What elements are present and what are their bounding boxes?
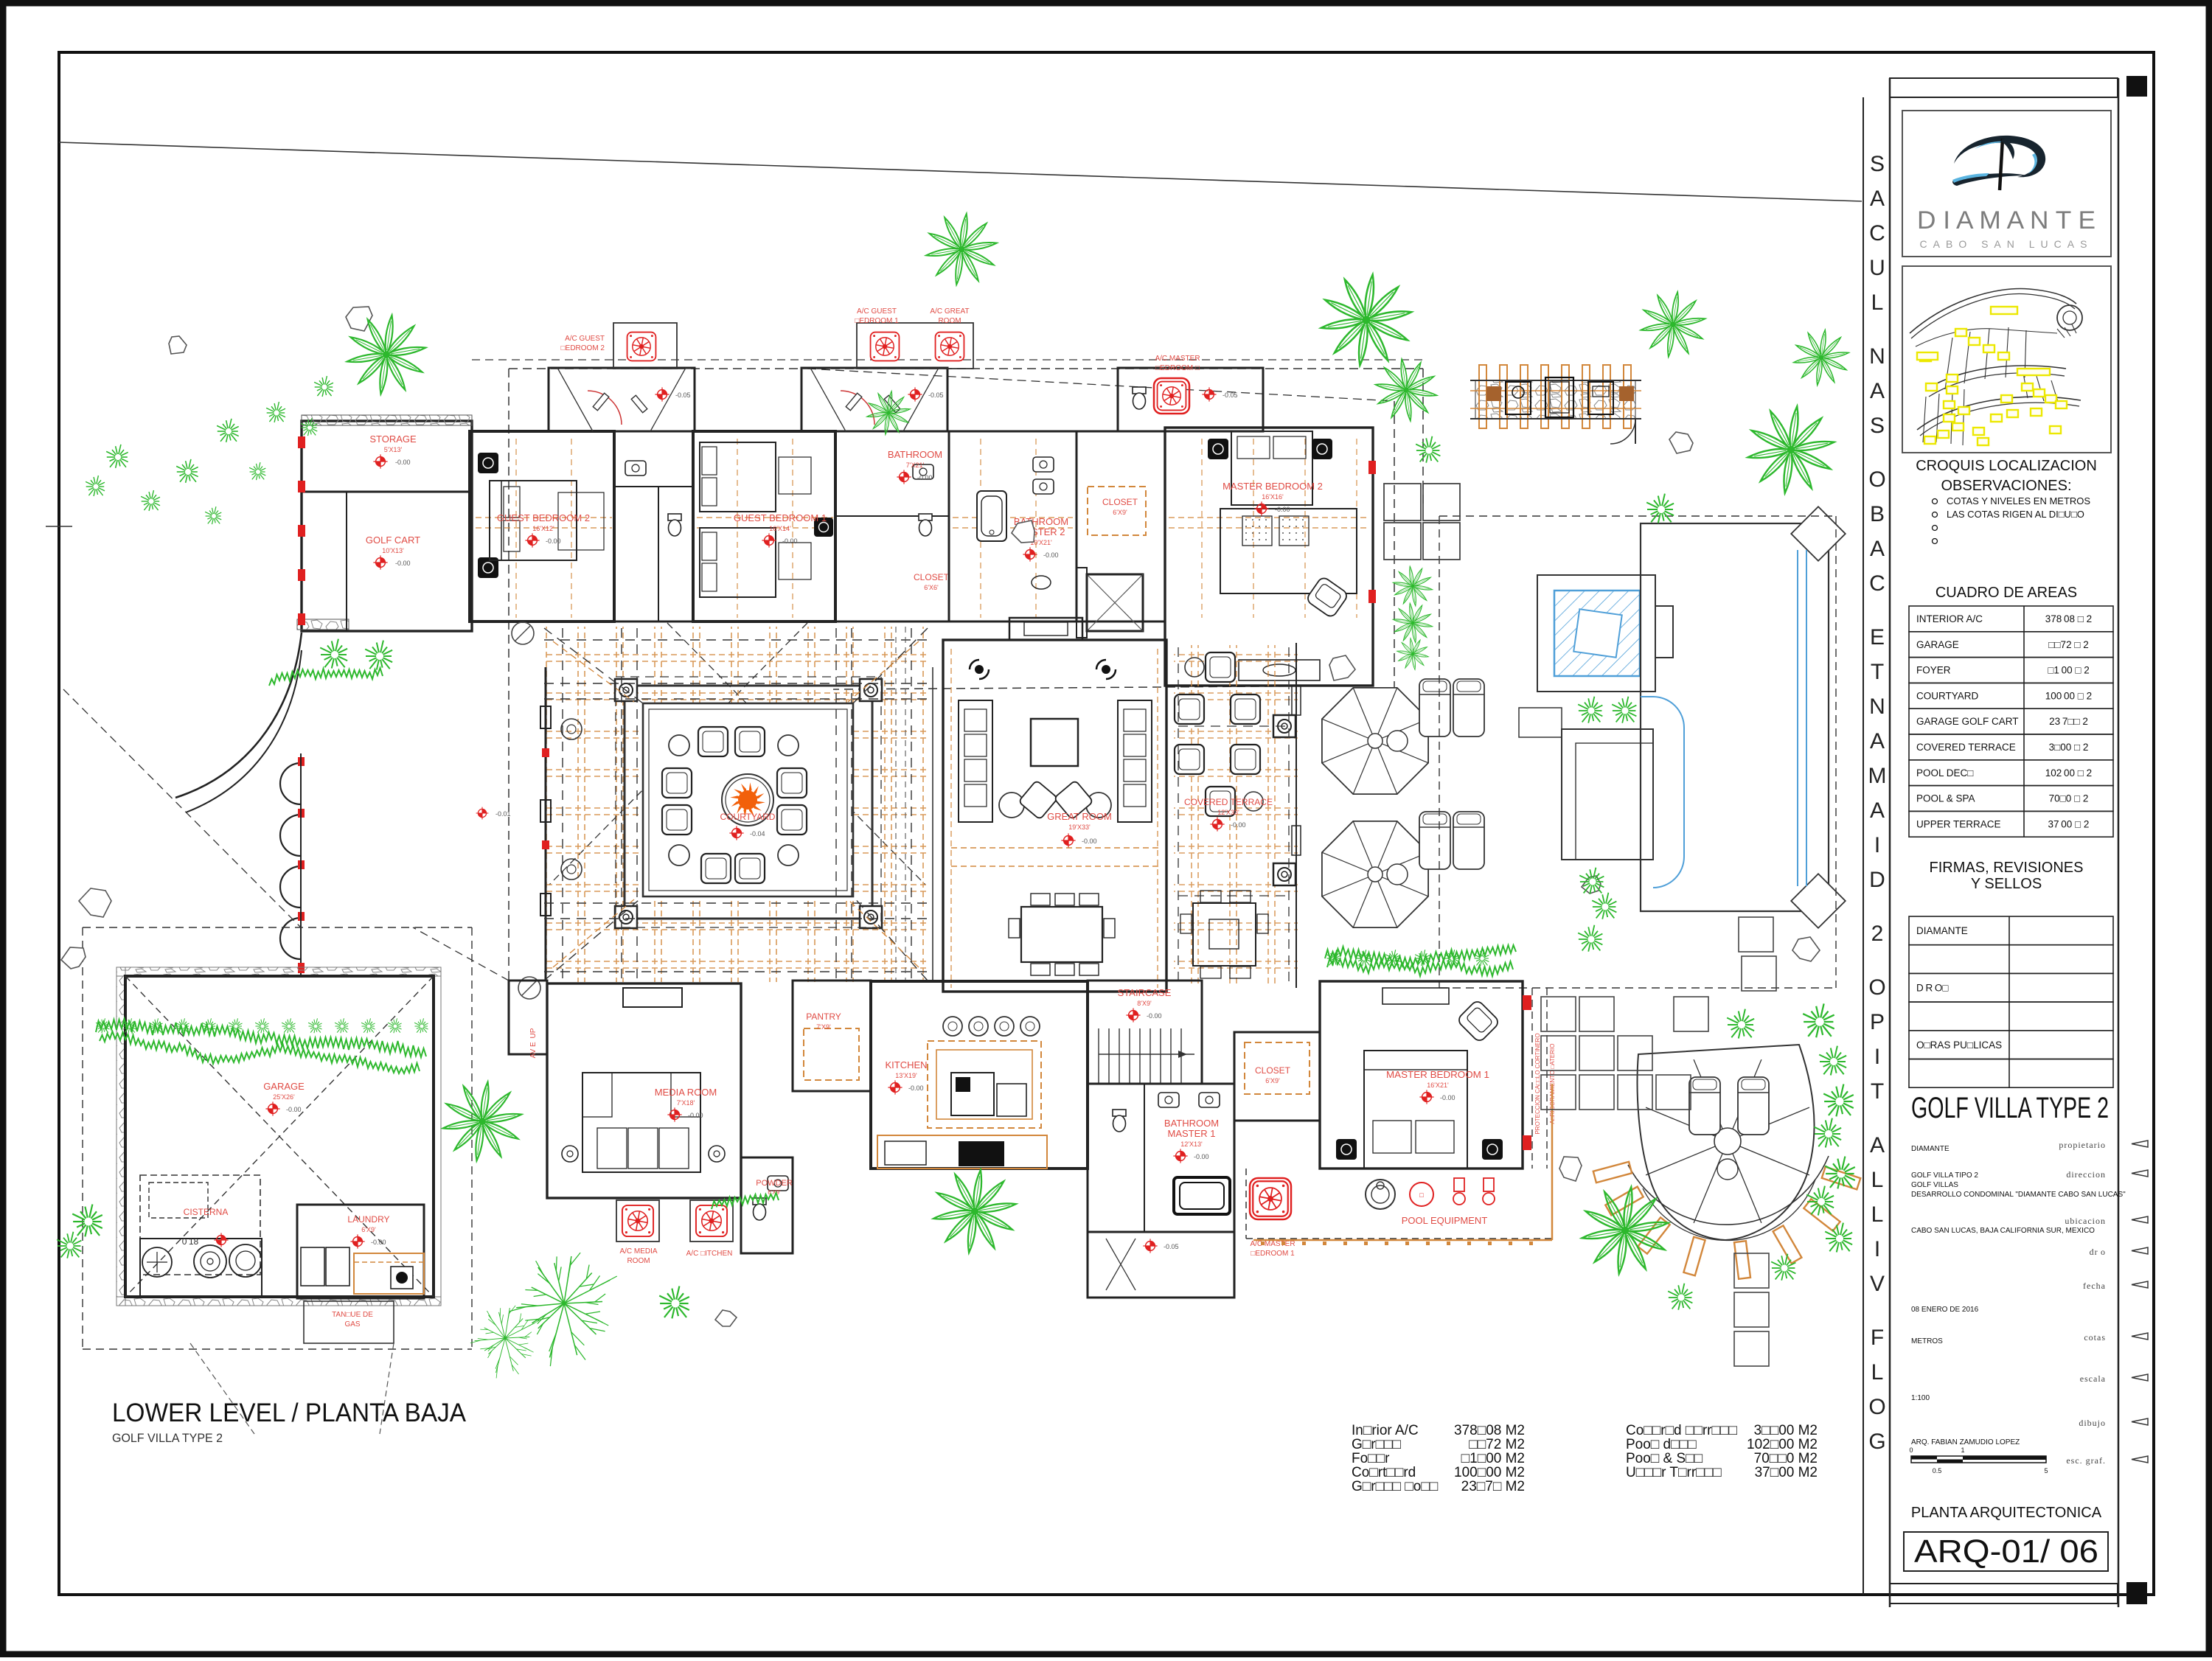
svg-text:DIAMANTE: DIAMANTE xyxy=(1916,925,1968,936)
svg-text:POWDER: POWDER xyxy=(756,1179,793,1188)
svg-text:GARAGE GOLF CART: GARAGE GOLF CART xyxy=(1916,716,2019,727)
svg-text:GREAT ROOM: GREAT ROOM xyxy=(1047,811,1112,822)
svg-text:□1□00 M2: □1□00 M2 xyxy=(1461,1451,1525,1466)
svg-text:POOL & SPA: POOL & SPA xyxy=(1916,793,1975,804)
svg-text:A: A xyxy=(1870,1133,1885,1157)
svg-text:M: M xyxy=(1868,764,1887,788)
svg-text:A/C MASTER: A/C MASTER xyxy=(1250,1240,1295,1248)
svg-text:POOL DEC□: POOL DEC□ xyxy=(1916,767,1973,779)
svg-text:-0.00: -0.00 xyxy=(546,537,561,545)
svg-text:Co□rt□□rd: Co□rt□□rd xyxy=(1352,1465,1416,1480)
svg-text:A: A xyxy=(1870,798,1885,823)
svg-text:16'X21': 16'X21' xyxy=(1427,1082,1449,1089)
svg-text:-0.00: -0.00 xyxy=(395,459,411,466)
svg-text:2: 2 xyxy=(1871,922,1884,946)
svg-text:C: C xyxy=(1869,571,1885,596)
svg-text:CLOSET: CLOSET xyxy=(1102,497,1138,507)
svg-text:I: I xyxy=(1874,833,1880,857)
svg-text:COVERED TERRACE: COVERED TERRACE xyxy=(1916,742,2016,753)
svg-text:□□72 □ 2: □□72 □ 2 xyxy=(2048,639,2089,650)
svg-text:TAN□UE DE: TAN□UE DE xyxy=(332,1311,373,1319)
svg-text:12'X33': 12'X33' xyxy=(1217,809,1239,816)
svg-text:-0.00: -0.00 xyxy=(395,560,411,567)
svg-text:propietario: propietario xyxy=(2059,1140,2106,1150)
svg-text:102 00 □ 2: 102 00 □ 2 xyxy=(2045,767,2092,779)
svg-text:37 00 □ 2: 37 00 □ 2 xyxy=(2048,818,2090,829)
svg-text:G□r□□□ □o□□: G□r□□□ □o□□ xyxy=(1352,1479,1439,1494)
svg-text:CROQUIS LOCALIZACION: CROQUIS LOCALIZACION xyxy=(1916,458,2097,474)
svg-text:fecha: fecha xyxy=(2083,1281,2106,1291)
svg-text:dr o: dr o xyxy=(2090,1247,2106,1257)
svg-text:19'X33': 19'X33' xyxy=(1068,823,1091,831)
svg-text:□EDROOM 1: □EDROOM 1 xyxy=(855,317,899,325)
svg-text:STAIRCASE: STAIRCASE xyxy=(1118,987,1172,998)
svg-text:-0.00: -0.00 xyxy=(688,1112,703,1119)
svg-text:L: L xyxy=(1871,1168,1884,1192)
svg-text:23 7□□ 2: 23 7□□ 2 xyxy=(2049,716,2088,727)
svg-text:5: 5 xyxy=(2044,1467,2048,1474)
svg-text:6'X9': 6'X9' xyxy=(1113,509,1127,516)
svg-text:A: A xyxy=(1870,729,1885,753)
svg-text:3□00 □ 2: 3□00 □ 2 xyxy=(2049,742,2089,753)
svg-text:I: I xyxy=(1874,1045,1880,1069)
svg-text:LOWER LEVEL / PLANTA BAJA: LOWER LEVEL / PLANTA BAJA xyxy=(112,1399,467,1427)
svg-text:-0.05: -0.05 xyxy=(1222,391,1238,399)
svg-text:CABO SAN LUCAS: CABO SAN LUCAS xyxy=(1920,238,2093,250)
svg-text:STORAGE: STORAGE xyxy=(369,433,417,445)
svg-text:Y SELLOS: Y SELLOS xyxy=(1971,876,2042,892)
svg-text:COURTYARD: COURTYARD xyxy=(1916,690,1979,701)
svg-text:G□r□□□: G□r□□□ xyxy=(1352,1437,1402,1452)
svg-text:16'X14': 16'X14' xyxy=(769,525,791,532)
svg-text:GARAGE: GARAGE xyxy=(263,1081,305,1092)
svg-text:1: 1 xyxy=(1961,1446,1964,1454)
svg-text:INTERIOR A/C: INTERIOR A/C xyxy=(1916,613,1983,624)
svg-text:0.5: 0.5 xyxy=(1933,1467,1942,1474)
svg-text:6'X6': 6'X6' xyxy=(924,584,939,591)
svg-text:OBSERVACIONES:: OBSERVACIONES: xyxy=(1941,478,2071,494)
svg-text:CLOSET: CLOSET xyxy=(914,572,950,582)
svg-text:ARQ. FABIAN ZAMUDIO LOPEZ: ARQ. FABIAN ZAMUDIO LOPEZ xyxy=(1911,1438,2020,1446)
svg-text:FIRMAS, REVISIONES: FIRMAS, REVISIONES xyxy=(1930,860,2084,876)
svg-text:GOLF CART: GOLF CART xyxy=(366,534,420,546)
svg-text:N: N xyxy=(1869,694,1885,719)
svg-text:F: F xyxy=(1871,1326,1884,1350)
svg-text:DIAMANTE: DIAMANTE xyxy=(1911,1145,1950,1153)
svg-text:5'X13': 5'X13' xyxy=(384,446,403,453)
svg-text:D R O□: D R O□ xyxy=(1916,982,1949,993)
svg-text:□: □ xyxy=(1419,1191,1424,1199)
svg-text:A/C □ITCHEN: A/C □ITCHEN xyxy=(686,1250,733,1258)
svg-text:□EDROOM □: □EDROOM □ xyxy=(1155,364,1200,372)
svg-text:L: L xyxy=(1871,290,1884,315)
svg-text:O: O xyxy=(1868,1395,1885,1419)
svg-text:-0.00: -0.00 xyxy=(782,537,798,545)
svg-text:□EDROOM 1: □EDROOM 1 xyxy=(1251,1250,1295,1258)
svg-text:S: S xyxy=(1870,152,1885,176)
svg-text:PROTECCION CA□□LO CORTINERO: PROTECCION CA□□LO CORTINERO xyxy=(1534,1033,1541,1134)
svg-text:-0.00: -0.00 xyxy=(1043,551,1059,559)
svg-text:□1 00 □ 2: □1 00 □ 2 xyxy=(2048,665,2090,676)
svg-text:13'X19': 13'X19' xyxy=(895,1072,917,1079)
svg-text:100 00 □ 2: 100 00 □ 2 xyxy=(2045,690,2092,701)
svg-text:A: A xyxy=(1870,379,1885,403)
svg-text:O: O xyxy=(1868,975,1885,1000)
svg-text:1:100: 1:100 xyxy=(1911,1394,1930,1402)
svg-text:-0.05: -0.05 xyxy=(1164,1243,1179,1250)
svg-text:LAS COTAS RIGEN AL DI□U□O: LAS COTAS RIGEN AL DI□U□O xyxy=(1947,509,2084,520)
svg-text:Poo□ d□□□: Poo□ d□□□ xyxy=(1626,1437,1697,1452)
svg-text:-0.00: -0.00 xyxy=(1275,506,1290,513)
svg-text:S: S xyxy=(1870,414,1885,438)
svg-text:16'X16': 16'X16' xyxy=(1262,493,1284,501)
svg-text:7'X21': 7'X21' xyxy=(906,462,925,469)
svg-text:GOLF VILLA TYPE 2: GOLF VILLA TYPE 2 xyxy=(1911,1092,2109,1124)
svg-text:GOLF VILLAS: GOLF VILLAS xyxy=(1911,1181,1958,1189)
svg-text:U: U xyxy=(1869,256,1885,280)
svg-text:AV E UP: AV E UP xyxy=(529,1028,538,1058)
svg-text:BATHROOM: BATHROOM xyxy=(1164,1118,1219,1129)
svg-text:Fo□□r: Fo□□r xyxy=(1352,1451,1390,1466)
svg-text:MASTER 1: MASTER 1 xyxy=(1167,1128,1215,1139)
svg-text:CISTERNA: CISTERNA xyxy=(184,1207,229,1217)
svg-text:A: A xyxy=(1870,537,1885,561)
svg-text:esc. graf.: esc. graf. xyxy=(2066,1455,2106,1466)
svg-text:GUEST BEDROOM 2: GUEST BEDROOM 2 xyxy=(497,512,590,523)
svg-text:-0.00: -0.00 xyxy=(917,474,933,481)
svg-text:ROOM: ROOM xyxy=(627,1257,650,1265)
svg-text:L: L xyxy=(1871,1202,1884,1227)
svg-text:T: T xyxy=(1871,1079,1884,1104)
svg-text:-0.00: -0.00 xyxy=(1147,1012,1162,1020)
svg-text:7'X9': 7'X9' xyxy=(816,1023,831,1031)
svg-text:O: O xyxy=(1868,467,1885,492)
svg-text:V: V xyxy=(1870,1272,1885,1296)
svg-text:378 08 □ 2: 378 08 □ 2 xyxy=(2045,613,2092,624)
svg-text:A/C MEDIA: A/C MEDIA xyxy=(619,1247,657,1256)
svg-text:-0.00: -0.00 xyxy=(1082,838,1097,845)
svg-text:MEDIA ROOM: MEDIA ROOM xyxy=(655,1087,717,1098)
svg-text:-0.05: -0.05 xyxy=(928,391,944,399)
svg-text:-0.00: -0.00 xyxy=(286,1106,302,1113)
svg-text:BATHROOM: BATHROOM xyxy=(888,449,942,460)
svg-text:23□7□ M2: 23□7□ M2 xyxy=(1461,1479,1525,1494)
svg-text:UPPER TERRACE: UPPER TERRACE xyxy=(1916,818,2001,829)
svg-text:-0.00: -0.00 xyxy=(1194,1153,1209,1160)
svg-text:LAUNDRY: LAUNDRY xyxy=(347,1214,389,1225)
svg-text:10'X13': 10'X13' xyxy=(382,547,404,554)
svg-text:L: L xyxy=(1871,1360,1884,1385)
svg-text:0: 0 xyxy=(1909,1446,1913,1454)
svg-text:ROOM: ROOM xyxy=(938,317,961,325)
svg-text:□EDROOM 2: □EDROOM 2 xyxy=(561,344,605,352)
svg-text:A/C MASTER: A/C MASTER xyxy=(1155,355,1200,363)
svg-text:0 18: 0 18 xyxy=(182,1236,199,1247)
svg-text:D I A M A N T E: D I A M A N T E xyxy=(1917,206,2096,234)
svg-text:3□□00 M2: 3□□00 M2 xyxy=(1754,1423,1818,1438)
svg-text:A/C GUEST: A/C GUEST xyxy=(857,307,897,316)
svg-text:GOLF VILLA TYPE 2: GOLF VILLA TYPE 2 xyxy=(112,1431,223,1445)
svg-text:7'X18': 7'X18' xyxy=(677,1099,695,1107)
svg-text:CUADRO DE AREAS: CUADRO DE AREAS xyxy=(1935,585,2077,601)
svg-text:378□08 M2: 378□08 M2 xyxy=(1454,1423,1525,1438)
svg-text:O□RAS PU□LICAS: O□RAS PU□LICAS xyxy=(1916,1040,2002,1051)
svg-text:DESARROLLO CONDOMINAL "DIAMANT: DESARROLLO CONDOMINAL "DIAMANTE CABO SAN… xyxy=(1911,1191,2126,1199)
svg-text:6'X9': 6'X9' xyxy=(768,1189,781,1196)
svg-text:6'X9': 6'X9' xyxy=(361,1226,376,1233)
svg-text:70□0 □ 2: 70□0 □ 2 xyxy=(2049,793,2089,804)
svg-text:COTAS Y NIVELES EN METROS: COTAS Y NIVELES EN METROS xyxy=(1947,495,2090,506)
svg-text:-0.00: -0.00 xyxy=(1440,1094,1455,1101)
svg-text:-0.00: -0.00 xyxy=(908,1084,924,1092)
svg-text:8'X9': 8'X9' xyxy=(1137,1000,1152,1007)
svg-text:In□rior A/C: In□rior A/C xyxy=(1352,1423,1419,1438)
svg-text:B: B xyxy=(1870,502,1885,526)
svg-text:12'X13': 12'X13' xyxy=(1180,1141,1203,1148)
svg-text:-0.05: -0.05 xyxy=(675,391,691,399)
svg-text:70□□0 M2: 70□□0 M2 xyxy=(1754,1451,1818,1466)
svg-text:100□00 M2: 100□00 M2 xyxy=(1454,1465,1525,1480)
svg-text:25'X26': 25'X26' xyxy=(273,1093,295,1101)
svg-text:KITCHEN: KITCHEN xyxy=(885,1059,927,1070)
svg-text:ARQ-01/ 06: ARQ-01/ 06 xyxy=(1914,1533,2098,1570)
svg-text:A: A xyxy=(1870,187,1885,211)
svg-text:G: G xyxy=(1868,1430,1885,1454)
svg-text:dibujo: dibujo xyxy=(2079,1418,2106,1428)
svg-text:Poo□ & S□□: Poo□ & S□□ xyxy=(1626,1451,1703,1466)
svg-text:MASTER BEDROOM 1: MASTER BEDROOM 1 xyxy=(1386,1069,1489,1080)
svg-text:-0.01: -0.01 xyxy=(495,810,511,818)
svg-text:ubicacion: ubicacion xyxy=(2065,1216,2106,1226)
svg-text:-0.00: -0.00 xyxy=(1231,821,1246,829)
svg-text:Co□□r□d □□rr□□□: Co□□r□d □□rr□□□ xyxy=(1626,1423,1737,1438)
svg-text:POOL EQUIPMENT: POOL EQUIPMENT xyxy=(1402,1215,1488,1226)
svg-text:COVERED TERRACE: COVERED TERRACE xyxy=(1184,797,1273,807)
svg-text:37□00 M2: 37□00 M2 xyxy=(1755,1465,1818,1480)
svg-text:T: T xyxy=(1871,660,1884,684)
svg-text:direccion: direccion xyxy=(2066,1169,2106,1180)
svg-text:A/C GREAT: A/C GREAT xyxy=(930,307,969,316)
svg-text:GARAGE: GARAGE xyxy=(1916,639,1959,650)
svg-text:C: C xyxy=(1869,221,1885,246)
svg-text:A/C GUEST: A/C GUEST xyxy=(565,335,605,343)
svg-text:08 ENERO DE 2016: 08 ENERO DE 2016 xyxy=(1911,1306,1979,1314)
svg-text:CLOSET: CLOSET xyxy=(1255,1065,1291,1076)
svg-text:-0.00: -0.00 xyxy=(371,1239,386,1246)
svg-text:FOYER: FOYER xyxy=(1916,665,1951,676)
svg-text:E: E xyxy=(1870,625,1885,650)
svg-text:GOLF VILLA TIPO 2: GOLF VILLA TIPO 2 xyxy=(1911,1171,1978,1180)
svg-text:PLANTA ARQUITECTONICA: PLANTA ARQUITECTONICA xyxy=(1911,1505,2102,1521)
svg-text:PANTRY: PANTRY xyxy=(806,1011,841,1022)
svg-text:CABO SAN LUCAS, BAJA CALIFORNI: CABO SAN LUCAS, BAJA CALIFORNIA SUR, MEX… xyxy=(1911,1227,2095,1235)
svg-text:U□□□r T□rr□□□: U□□□r T□rr□□□ xyxy=(1626,1465,1722,1480)
svg-text:METROS: METROS xyxy=(1911,1337,1943,1345)
svg-text:102□00 M2: 102□00 M2 xyxy=(1747,1437,1818,1452)
svg-text:COURTYARD: COURTYARD xyxy=(720,812,776,822)
svg-text:P: P xyxy=(1870,1010,1885,1034)
svg-text:□□72 M2: □□72 M2 xyxy=(1469,1437,1525,1452)
svg-text:-0.04: -0.04 xyxy=(750,830,765,838)
svg-text:cotas: cotas xyxy=(2084,1332,2106,1343)
svg-text:N: N xyxy=(1869,344,1885,369)
svg-text:GAS: GAS xyxy=(344,1320,360,1329)
svg-text:GUEST BEDROOM 1: GUEST BEDROOM 1 xyxy=(734,512,827,523)
svg-text:6'X9': 6'X9' xyxy=(1265,1077,1280,1084)
svg-text:MASTER BEDROOM 2: MASTER BEDROOM 2 xyxy=(1222,481,1323,492)
svg-text:16'X12': 16'X12' xyxy=(532,525,554,532)
svg-text:I: I xyxy=(1874,1237,1880,1261)
svg-text:D: D xyxy=(1869,868,1885,892)
svg-text:escala: escala xyxy=(2080,1373,2106,1384)
